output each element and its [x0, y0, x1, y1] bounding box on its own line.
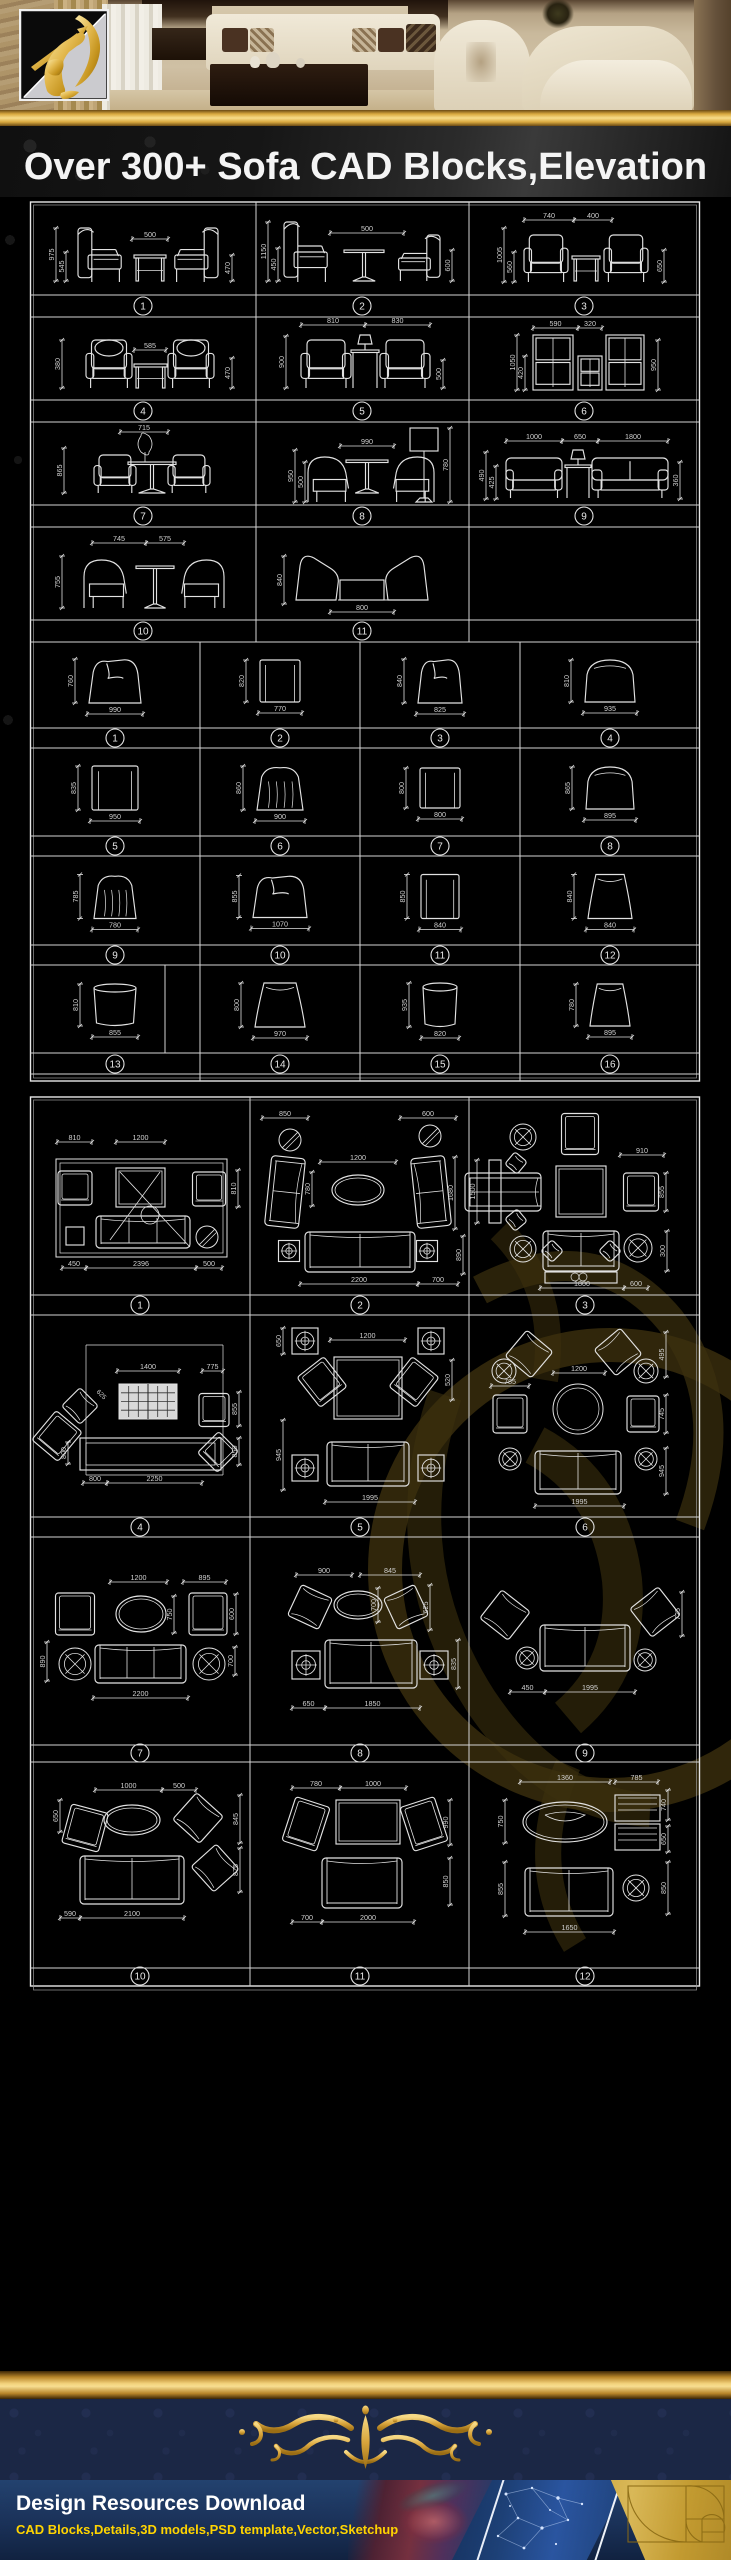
svg-text:890: 890 [454, 1249, 463, 1261]
svg-text:1995: 1995 [362, 1493, 378, 1502]
svg-text:10: 10 [274, 951, 286, 962]
svg-text:1850: 1850 [365, 1699, 381, 1708]
svg-text:500: 500 [296, 476, 305, 488]
svg-text:810: 810 [69, 1133, 81, 1142]
svg-text:845: 845 [231, 1813, 240, 1825]
svg-text:10: 10 [134, 1972, 146, 1983]
svg-text:650: 650 [655, 260, 664, 272]
svg-text:990: 990 [441, 1817, 450, 1829]
svg-text:9: 9 [582, 1749, 588, 1760]
svg-text:2000: 2000 [360, 1913, 376, 1922]
svg-text:830: 830 [392, 316, 404, 325]
svg-text:945: 945 [274, 1449, 283, 1461]
svg-text:725: 725 [673, 1608, 682, 1620]
svg-text:990: 990 [109, 705, 121, 714]
svg-text:1070: 1070 [272, 920, 288, 929]
svg-text:945: 945 [657, 1465, 666, 1477]
svg-text:560: 560 [505, 261, 514, 273]
svg-text:950: 950 [109, 812, 121, 821]
svg-text:970: 970 [274, 1029, 286, 1038]
svg-text:780: 780 [109, 921, 121, 930]
svg-text:1995: 1995 [582, 1683, 598, 1692]
svg-text:935: 935 [604, 704, 616, 713]
svg-text:845: 845 [384, 1566, 396, 1575]
svg-text:1000: 1000 [526, 432, 542, 441]
svg-text:300: 300 [658, 1245, 667, 1257]
svg-text:780: 780 [567, 999, 576, 1011]
svg-text:450: 450 [269, 259, 278, 271]
svg-text:820: 820 [237, 675, 246, 687]
svg-text:840: 840 [565, 891, 574, 903]
svg-text:5: 5 [357, 1523, 363, 1534]
svg-text:715: 715 [138, 423, 150, 432]
svg-text:785: 785 [71, 891, 80, 903]
svg-text:700: 700 [432, 1275, 444, 1284]
svg-text:7: 7 [140, 512, 146, 523]
svg-text:3: 3 [437, 734, 443, 745]
svg-text:760: 760 [66, 675, 75, 687]
svg-text:855: 855 [109, 1028, 121, 1037]
svg-text:3: 3 [582, 1301, 588, 1312]
svg-text:2: 2 [359, 302, 365, 313]
svg-text:800: 800 [397, 782, 406, 794]
svg-text:785: 785 [631, 1773, 643, 1782]
svg-text:8: 8 [607, 842, 613, 853]
svg-text:810: 810 [562, 675, 571, 687]
svg-text:500: 500 [144, 230, 156, 239]
svg-text:320: 320 [584, 319, 596, 328]
svg-text:835: 835 [449, 1658, 458, 1670]
svg-text:590: 590 [64, 1909, 76, 1918]
svg-text:1200: 1200 [131, 1573, 147, 1582]
svg-text:1650: 1650 [562, 1923, 578, 1932]
svg-text:850: 850 [441, 1876, 450, 1888]
svg-text:1500: 1500 [468, 1184, 477, 1200]
svg-text:1360: 1360 [557, 1773, 573, 1782]
svg-text:650: 650 [51, 1810, 60, 1822]
svg-text:4: 4 [140, 407, 146, 418]
svg-text:600: 600 [422, 1109, 434, 1118]
svg-text:650: 650 [303, 1699, 315, 1708]
svg-text:625: 625 [95, 1389, 108, 1402]
svg-text:840: 840 [395, 675, 404, 687]
svg-text:500: 500 [434, 368, 443, 380]
svg-text:2250: 2250 [147, 1474, 163, 1483]
svg-text:650: 650 [574, 432, 586, 441]
svg-text:800: 800 [59, 1447, 68, 1459]
svg-text:975: 975 [47, 249, 56, 261]
svg-text:1200: 1200 [350, 1153, 366, 1162]
svg-text:800: 800 [232, 999, 241, 1011]
svg-text:910: 910 [636, 1146, 648, 1155]
svg-text:950: 950 [649, 359, 658, 371]
svg-text:740: 740 [659, 1799, 668, 1811]
svg-text:1800: 1800 [625, 432, 641, 441]
svg-text:700: 700 [369, 1599, 378, 1611]
svg-text:470: 470 [223, 262, 232, 274]
svg-text:855: 855 [230, 1403, 239, 1415]
svg-text:855: 855 [496, 1883, 505, 1895]
svg-text:700: 700 [301, 1913, 313, 1922]
svg-text:1: 1 [140, 302, 146, 313]
svg-text:895: 895 [604, 811, 616, 820]
svg-text:6: 6 [277, 842, 283, 853]
svg-text:11: 11 [355, 1972, 366, 1983]
svg-text:865: 865 [55, 465, 64, 477]
svg-text:850: 850 [230, 1446, 239, 1458]
svg-text:16: 16 [604, 1060, 616, 1071]
svg-text:935: 935 [400, 999, 409, 1011]
svg-text:3: 3 [581, 302, 587, 313]
svg-text:990: 990 [361, 437, 373, 446]
svg-text:850: 850 [279, 1109, 291, 1118]
svg-text:500: 500 [203, 1259, 215, 1268]
svg-text:425: 425 [487, 477, 496, 489]
svg-text:895: 895 [199, 1573, 211, 1582]
svg-text:11: 11 [435, 951, 446, 962]
svg-text:380: 380 [53, 358, 62, 370]
svg-text:650: 650 [274, 1335, 283, 1347]
svg-text:1150: 1150 [259, 244, 268, 259]
svg-text:755: 755 [53, 576, 62, 588]
svg-text:520: 520 [443, 1374, 452, 1386]
svg-text:590: 590 [550, 319, 562, 328]
svg-text:800: 800 [356, 603, 368, 612]
svg-text:1400: 1400 [140, 1362, 156, 1371]
svg-text:2200: 2200 [133, 1689, 149, 1698]
svg-text:700: 700 [226, 1655, 235, 1667]
svg-text:585: 585 [144, 341, 156, 350]
svg-text:895: 895 [604, 1028, 616, 1037]
svg-text:810: 810 [327, 316, 339, 325]
svg-text:8: 8 [359, 512, 365, 523]
svg-text:4: 4 [137, 1523, 143, 1534]
svg-text:11: 11 [357, 627, 368, 638]
svg-text:745: 745 [657, 1408, 666, 1420]
svg-text:450: 450 [68, 1259, 80, 1268]
svg-text:1200: 1200 [571, 1364, 587, 1373]
svg-text:5: 5 [359, 407, 365, 418]
svg-text:650: 650 [659, 1833, 668, 1845]
svg-text:1005: 1005 [495, 247, 504, 263]
svg-text:1680: 1680 [446, 1185, 455, 1201]
svg-text:545: 545 [57, 261, 66, 273]
svg-text:2: 2 [277, 734, 283, 745]
svg-text:855: 855 [230, 891, 239, 903]
svg-text:600: 600 [227, 1608, 236, 1620]
svg-text:875: 875 [231, 1864, 240, 1876]
svg-text:500: 500 [361, 224, 373, 233]
svg-text:14: 14 [274, 1060, 286, 1071]
svg-text:490: 490 [477, 470, 486, 482]
svg-text:420: 420 [516, 367, 525, 379]
svg-text:9: 9 [112, 951, 118, 962]
svg-text:1995: 1995 [572, 1497, 588, 1506]
svg-text:470: 470 [223, 367, 232, 379]
svg-text:6: 6 [582, 1523, 588, 1534]
svg-text:840: 840 [604, 921, 616, 930]
svg-text:1000: 1000 [365, 1779, 381, 1788]
svg-text:780: 780 [303, 1183, 312, 1195]
svg-text:750: 750 [496, 1816, 505, 1828]
svg-text:15: 15 [434, 1060, 446, 1071]
svg-text:10: 10 [137, 627, 149, 638]
svg-text:840: 840 [275, 574, 284, 586]
svg-text:1200: 1200 [360, 1331, 376, 1340]
svg-text:740: 740 [543, 211, 555, 220]
svg-text:5: 5 [112, 842, 118, 853]
svg-text:820: 820 [434, 1029, 446, 1038]
svg-text:835: 835 [69, 782, 78, 794]
svg-text:890: 890 [38, 1656, 47, 1668]
svg-text:775: 775 [207, 1362, 219, 1371]
svg-text:810: 810 [229, 1183, 238, 1195]
svg-text:360: 360 [671, 475, 680, 487]
svg-text:2: 2 [357, 1301, 363, 1312]
svg-text:850: 850 [398, 891, 407, 903]
svg-text:1: 1 [112, 734, 118, 745]
svg-text:575: 575 [159, 534, 171, 543]
svg-text:780: 780 [310, 1779, 322, 1788]
svg-text:785: 785 [504, 1377, 516, 1386]
svg-text:1800: 1800 [574, 1279, 590, 1288]
svg-text:750: 750 [165, 1609, 174, 1621]
svg-text:8: 8 [357, 1749, 363, 1760]
svg-text:1000: 1000 [121, 1781, 137, 1790]
svg-text:2396: 2396 [133, 1259, 149, 1268]
svg-text:855: 855 [657, 1186, 666, 1198]
svg-text:2200: 2200 [351, 1275, 367, 1284]
svg-text:900: 900 [274, 812, 286, 821]
svg-text:495: 495 [657, 1349, 666, 1361]
svg-text:900: 900 [318, 1566, 330, 1575]
svg-text:9: 9 [581, 512, 587, 523]
svg-text:840: 840 [434, 921, 446, 930]
svg-text:780: 780 [441, 459, 450, 471]
svg-text:12: 12 [604, 951, 616, 962]
svg-text:810: 810 [71, 999, 80, 1011]
svg-text:825: 825 [434, 705, 446, 714]
svg-text:2100: 2100 [124, 1909, 140, 1918]
svg-text:13: 13 [109, 1060, 121, 1071]
svg-text:1: 1 [137, 1301, 143, 1312]
svg-text:625: 625 [421, 1602, 430, 1614]
svg-text:900: 900 [277, 356, 286, 368]
svg-text:745: 745 [113, 534, 125, 543]
svg-text:600: 600 [630, 1279, 642, 1288]
svg-text:4: 4 [607, 734, 613, 745]
svg-text:865: 865 [563, 782, 572, 794]
svg-text:600: 600 [443, 260, 452, 272]
svg-text:6: 6 [581, 407, 587, 418]
svg-text:12: 12 [579, 1972, 591, 1983]
svg-text:400: 400 [587, 211, 599, 220]
svg-text:7: 7 [437, 842, 443, 853]
svg-text:950: 950 [286, 470, 295, 482]
svg-text:860: 860 [234, 782, 243, 794]
svg-text:800: 800 [89, 1474, 101, 1483]
svg-text:800: 800 [434, 810, 446, 819]
svg-text:850: 850 [659, 1882, 668, 1894]
svg-text:450: 450 [522, 1683, 534, 1692]
svg-text:7: 7 [137, 1749, 143, 1760]
svg-text:1200: 1200 [133, 1133, 149, 1142]
svg-text:500: 500 [173, 1781, 185, 1790]
svg-text:770: 770 [274, 704, 286, 713]
